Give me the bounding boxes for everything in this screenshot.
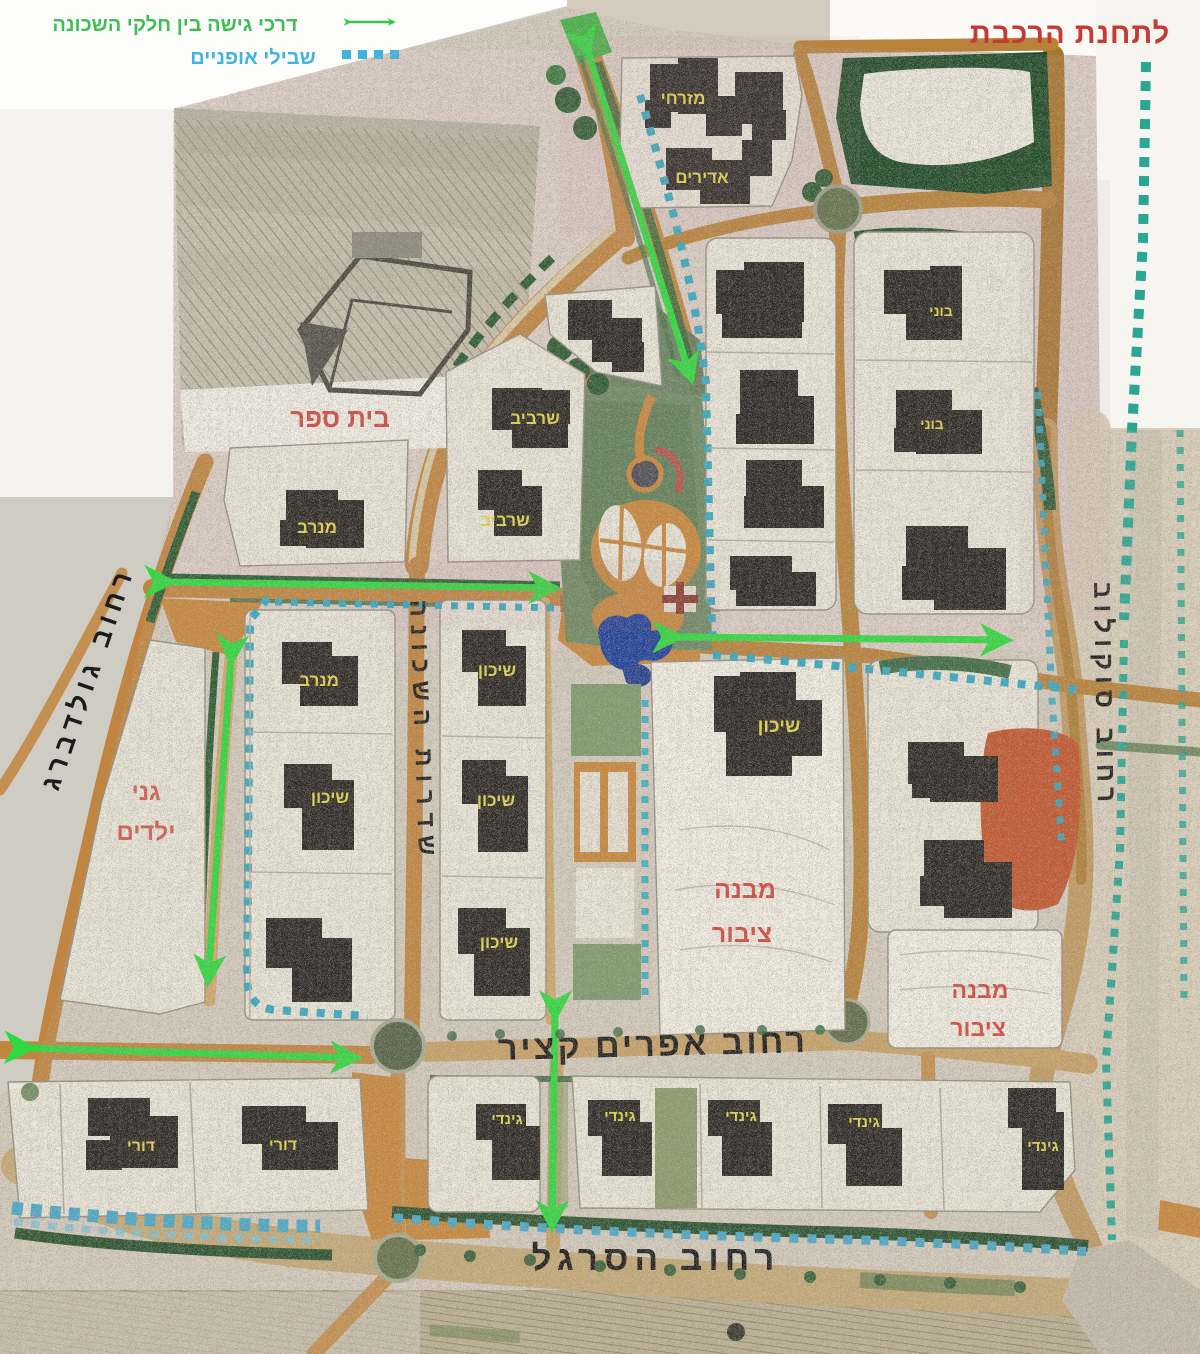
svg-text:דרכי גישה בין חלקי השכונה: דרכי גישה בין חלקי השכונה [52, 14, 298, 36]
svg-text:שבילי אופניים: שבילי אופניים [190, 47, 315, 69]
svg-text:לתחנת הרכבת: לתחנת הרכבת [970, 18, 1170, 50]
